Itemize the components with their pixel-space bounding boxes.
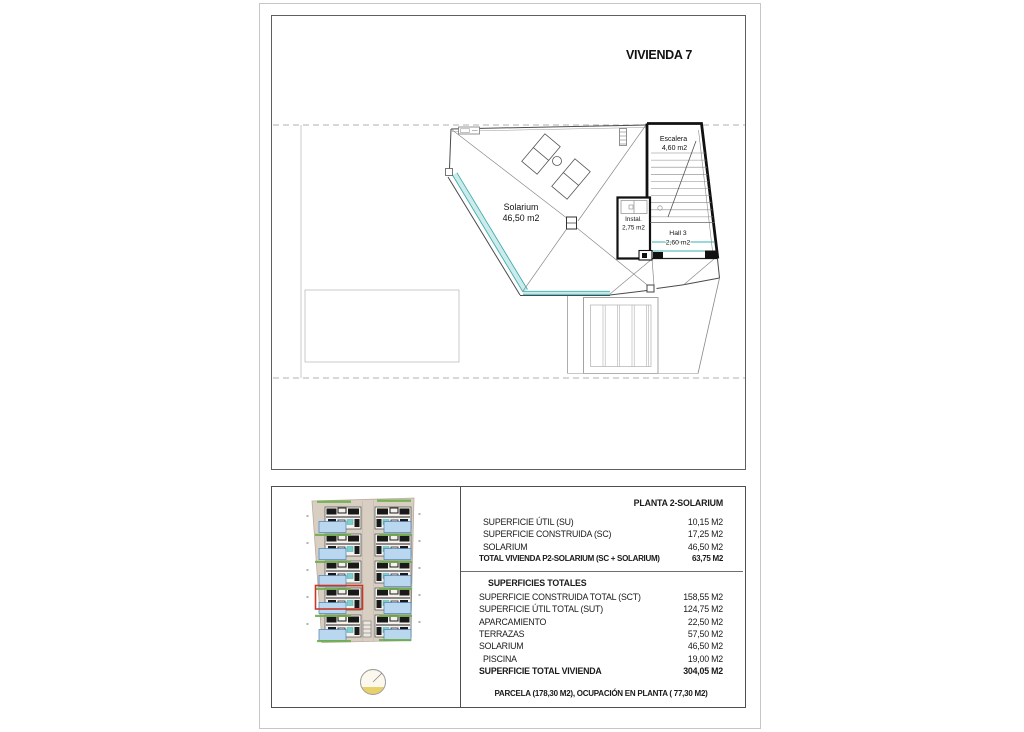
- surface-summary-table: PLANTA 2-SOLARIUM SUPERFICIE ÚTIL (SU)10…: [460, 487, 743, 707]
- table-row: TERRAZAS57,50 M2: [479, 628, 723, 640]
- grille-box: [620, 129, 627, 146]
- terrace-column: [647, 285, 654, 292]
- table-row: APARCAMIENTO22,50 M2: [479, 616, 723, 628]
- room-label-instal: Instal.: [625, 216, 642, 223]
- table-row: SOLARIUM46,50 M2: [479, 541, 723, 553]
- north-symbol: [361, 670, 386, 695]
- section2-rows: SUPERFICIE CONSTRUIDA TOTAL (SCT)158,55 …: [479, 591, 723, 677]
- table-row: SUPERFICIE ÚTIL (SU)10,15 M2: [479, 516, 723, 528]
- room-label-escalera: Escalera: [660, 136, 687, 143]
- table-row: SUPERFICIE CONSTRUIDA (SC)17,25 M2: [479, 528, 723, 540]
- vent-box: [459, 127, 480, 134]
- summary-panel-box: PLANTA 2-SOLARIUM SUPERFICIE ÚTIL (SU)10…: [271, 486, 746, 708]
- section2-header: SUPERFICIES TOTALES: [479, 577, 723, 589]
- parcel-outline: [301, 125, 459, 378]
- section1-rows: SUPERFICIE ÚTIL (SU)10,15 M2 SUPERFICIE …: [479, 516, 723, 565]
- room-label-solarium: Solarium: [504, 202, 539, 212]
- room-area-instal: 2,75 m2: [622, 225, 645, 232]
- table-total-row: SUPERFICIE TOTAL VIVIENDA304,05 M2: [479, 665, 723, 677]
- site-plan-key: [272, 487, 460, 707]
- page-title: VIVIENDA 7: [604, 48, 714, 62]
- table-row: SUPERFICIE CONSTRUIDA TOTAL (SCT)158,55 …: [479, 591, 723, 603]
- floor-plan-panel: Solarium 46,50 m2 Escalera 4,60 m2 Insta…: [271, 15, 746, 470]
- table-row: SUPERFICIE ÚTIL TOTAL (SUT)124,75 M2: [479, 603, 723, 615]
- green-strip: [377, 500, 411, 502]
- green-strip: [317, 501, 351, 503]
- wall-node: [446, 169, 453, 176]
- room-area-escalera: 4,60 m2: [662, 145, 687, 152]
- center-column: [567, 217, 577, 229]
- room-area-hall: 2,60 m2: [666, 240, 691, 247]
- section1-header: PLANTA 2-SOLARIUM: [479, 497, 723, 509]
- pergola: [568, 296, 699, 374]
- walkway-stair-icon: [363, 621, 371, 637]
- parcel-footer: PARCELA (178,30 M2), OCUPACIÓN EN PLANTA…: [479, 689, 723, 698]
- room-area-solarium: 46,50 m2: [503, 213, 540, 223]
- room-label-hall: Hall 3: [669, 230, 687, 237]
- table-total-row: TOTAL VIVIENDA P2-SOLARIUM (SC + SOLARIU…: [479, 553, 723, 565]
- section-divider: [461, 571, 743, 572]
- terrace-side-line: [698, 278, 720, 374]
- floor-plan-drawing: Solarium 46,50 m2 Escalera 4,60 m2 Insta…: [272, 16, 745, 469]
- table-row: SOLARIUM46,50 M2: [479, 640, 723, 652]
- table-row: PISCINA19,00 M2: [479, 653, 723, 665]
